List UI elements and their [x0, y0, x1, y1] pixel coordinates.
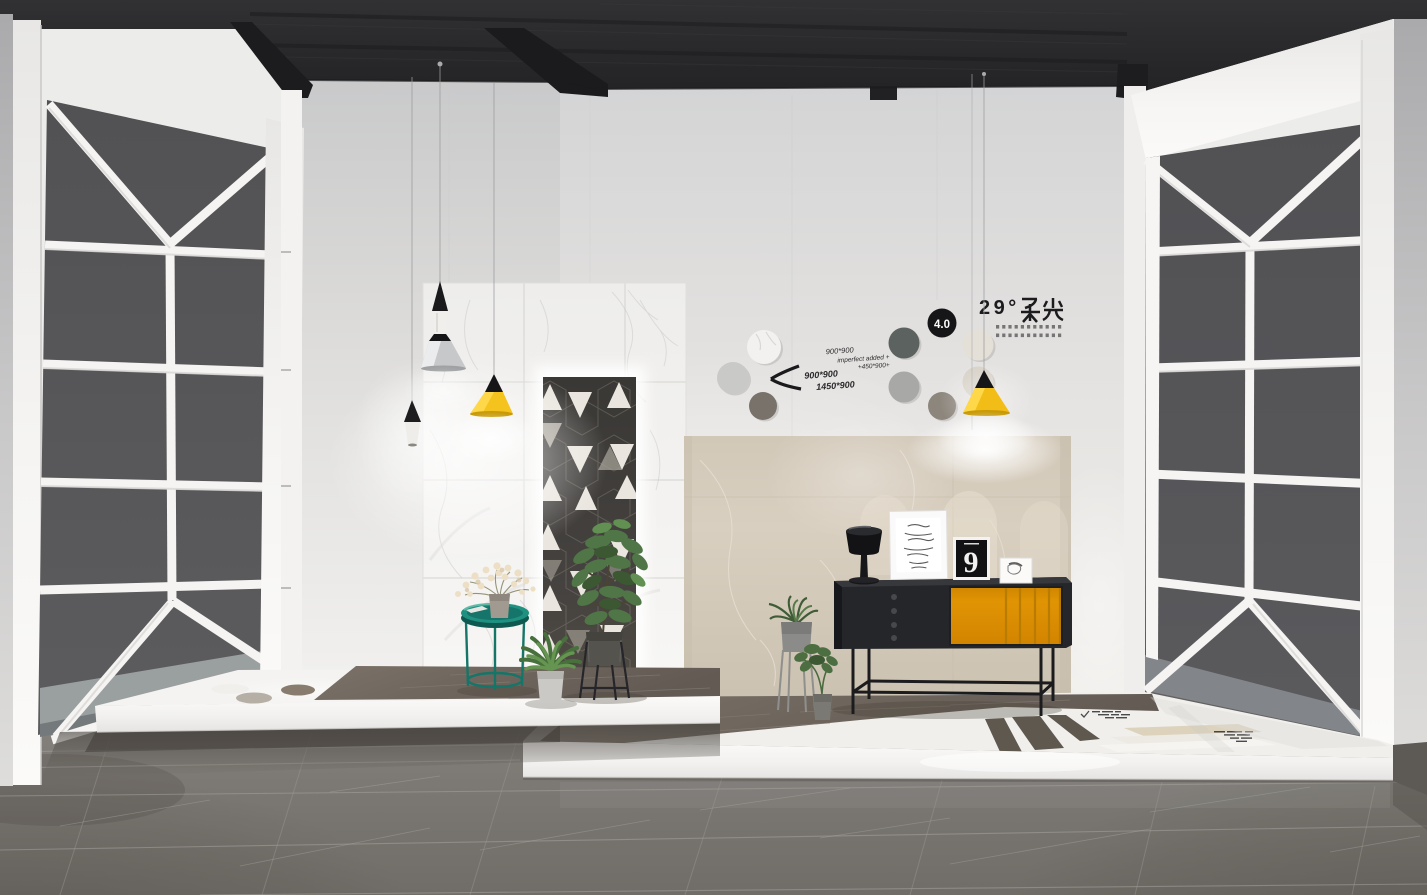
svg-text:29°: 29° [979, 297, 1020, 319]
svg-text:4.0: 4.0 [934, 319, 950, 331]
svg-text:9: 9 [964, 546, 979, 579]
